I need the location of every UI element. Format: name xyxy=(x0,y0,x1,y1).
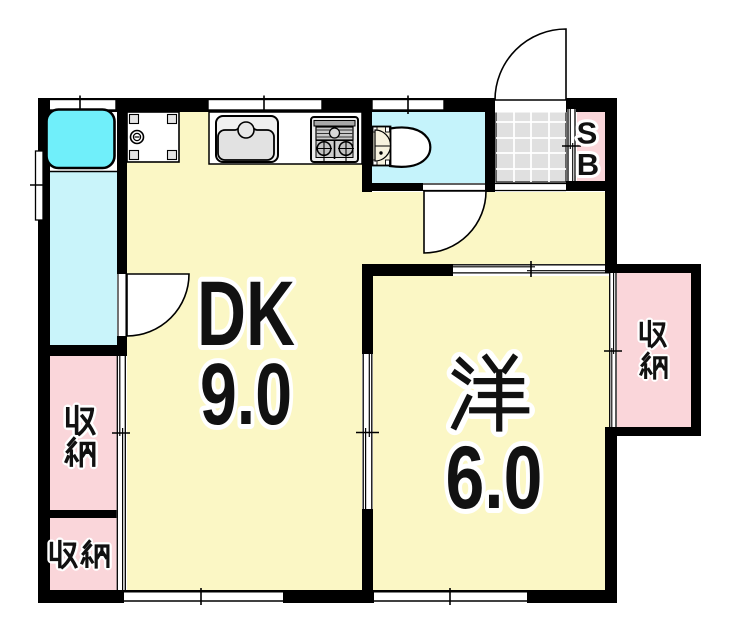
svg-text:S: S xyxy=(577,116,598,151)
svg-text:6.0: 6.0 xyxy=(446,427,543,527)
svg-text:9.0: 9.0 xyxy=(200,346,292,443)
svg-text:B: B xyxy=(577,147,599,182)
